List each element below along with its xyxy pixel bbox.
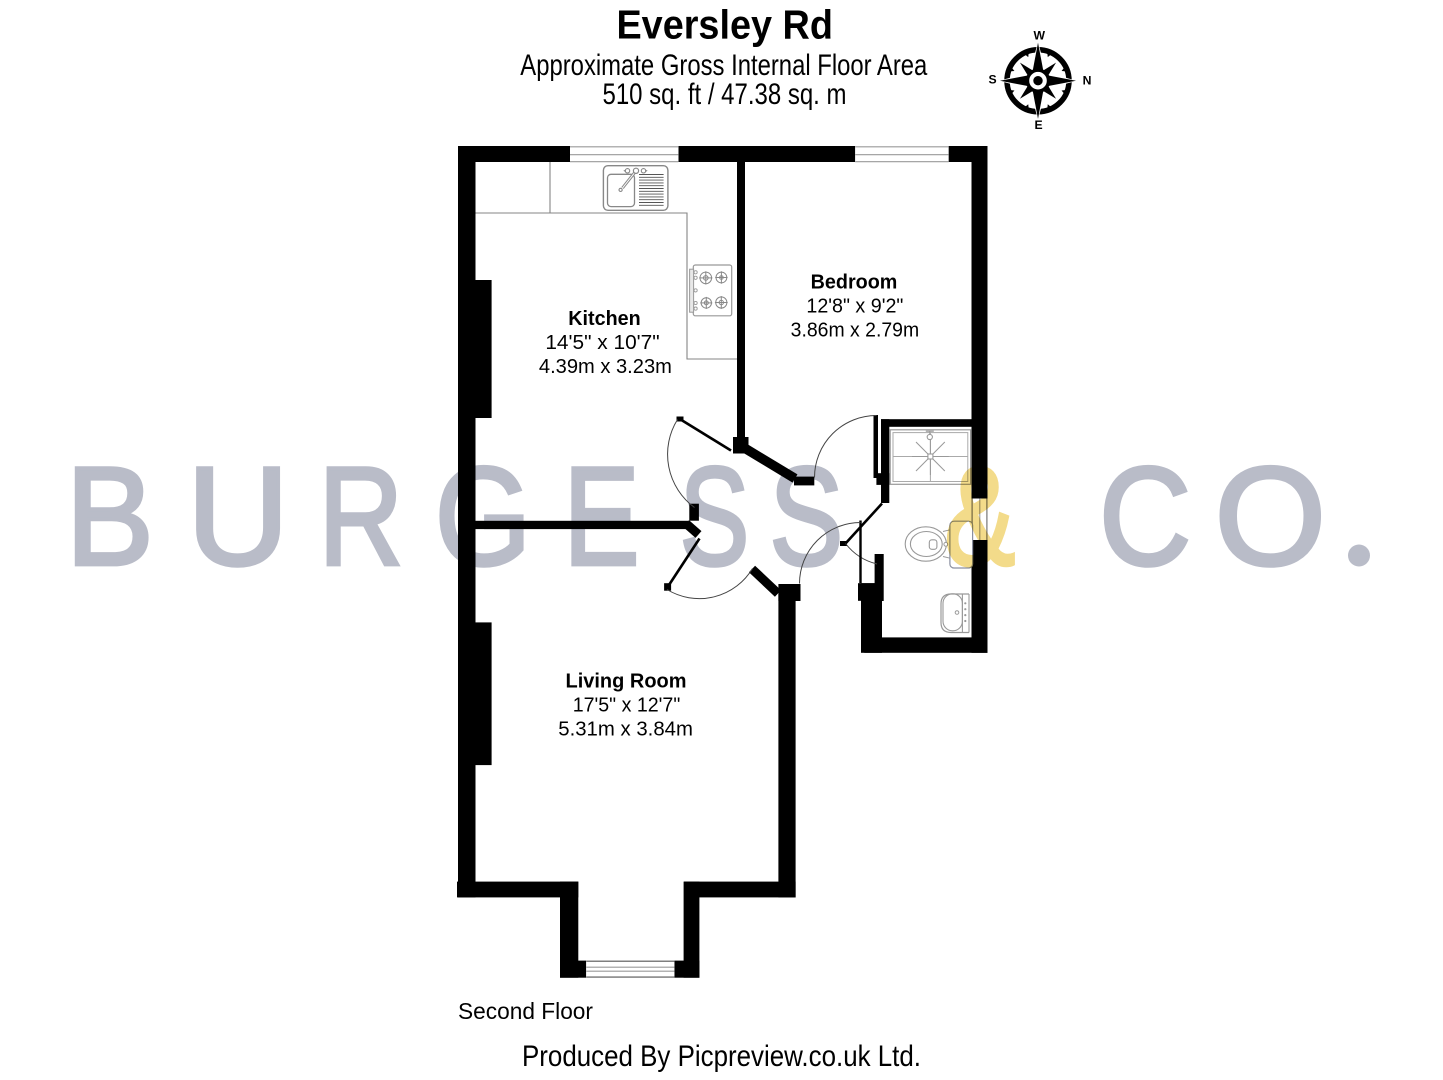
svg-text:G: G (435, 437, 531, 594)
svg-text:17'5" x 12'7": 17'5" x 12'7" (573, 695, 681, 717)
svg-text:Eversley Rd: Eversley Rd (616, 1, 833, 47)
svg-text:Bedroom: Bedroom (811, 271, 898, 294)
svg-text:S: S (989, 73, 997, 87)
svg-text:510 sq. ft / 47.38 sq. m: 510 sq. ft / 47.38 sq. m (603, 78, 847, 111)
svg-text:Second Floor: Second Floor (458, 998, 593, 1024)
svg-text:U: U (187, 438, 289, 594)
svg-text:5.31m x 3.84m: 5.31m x 3.84m (558, 719, 693, 741)
svg-text:S: S (770, 438, 844, 595)
svg-text:Kitchen: Kitchen (568, 307, 640, 330)
svg-text:12'8" x 9'2": 12'8" x 9'2" (806, 295, 903, 317)
svg-text:B: B (66, 438, 154, 594)
svg-text:Produced By Picpreview.co.uk L: Produced By Picpreview.co.uk Ltd. (522, 1040, 921, 1073)
svg-text:R: R (319, 439, 404, 595)
svg-text:S: S (680, 438, 749, 595)
svg-text:4.39m x 3.23m: 4.39m x 3.23m (539, 356, 672, 378)
svg-text:C: C (1099, 439, 1191, 595)
svg-text:&: & (945, 439, 1016, 595)
svg-text:3.86m x 2.79m: 3.86m x 2.79m (791, 320, 920, 342)
svg-text:E: E (564, 439, 640, 595)
svg-text:E: E (1034, 118, 1042, 132)
svg-text:14'5" x 10'7": 14'5" x 10'7" (545, 332, 659, 354)
svg-text:Approximate Gross Internal Flo: Approximate Gross Internal Floor Area (520, 49, 927, 82)
svg-text:N: N (1083, 73, 1092, 87)
svg-text:W: W (1034, 28, 1046, 42)
svg-text:O: O (1215, 438, 1326, 594)
svg-text:Living Room: Living Room (566, 670, 687, 693)
